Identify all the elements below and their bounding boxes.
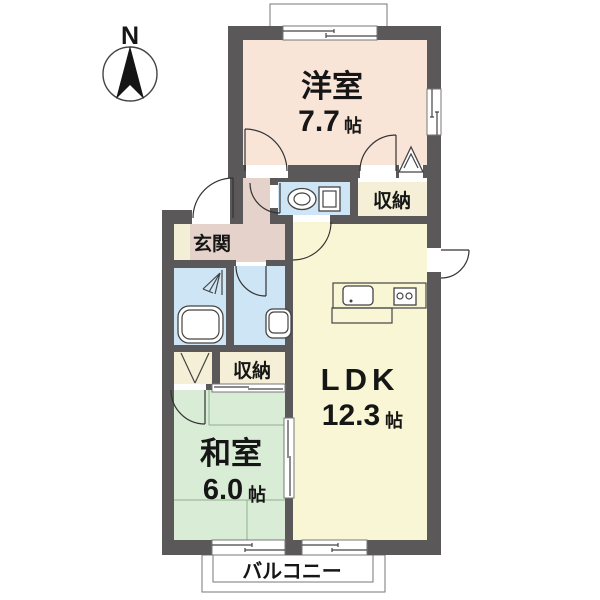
eaves-outline: [270, 4, 387, 28]
bathtub-icon: [178, 306, 223, 343]
ldk-unit: 帖: [385, 410, 403, 431]
western-room-unit: 帖: [344, 115, 362, 136]
floor-plan-canvas: N 洋室 7.7 帖 収納 玄関 LDK 12.3 帖 収納 和室 6.0 帖 …: [0, 0, 600, 600]
western-room-name: 洋室: [301, 69, 363, 104]
entrance-label: 玄関: [193, 232, 231, 255]
window-north: [283, 26, 377, 40]
entrance-step: [174, 224, 190, 262]
window-east-western-room: [427, 89, 441, 135]
entrance-door: [193, 178, 233, 218]
sliding-door-storage-lower: [212, 384, 285, 392]
north-compass: N: [103, 22, 157, 101]
window-balcony-ldk: [302, 540, 367, 555]
japanese-room-name: 和室: [200, 436, 262, 471]
sliding-door-japanese-ldk: [284, 418, 294, 498]
storage-upper-label: 収納: [373, 189, 411, 212]
ldk-area: 12.3: [322, 399, 380, 432]
japanese-room-unit: 帖: [248, 484, 266, 505]
storage-lower-label: 収納: [233, 359, 271, 382]
japanese-room-area: 6.0: [203, 474, 243, 506]
western-room-area: 7.7: [298, 105, 340, 138]
stove-icon: [394, 288, 416, 305]
balcony-label: バルコニー: [242, 560, 342, 583]
window-balcony-japanese: [212, 540, 285, 555]
north-label: N: [121, 22, 139, 50]
kitchen-sink-icon: [343, 286, 373, 305]
washbasin-icon: [266, 309, 291, 338]
floor-plan: N 洋室 7.7 帖 収納 玄関 LDK 12.3 帖 収納 和室 6.0 帖 …: [0, 0, 600, 600]
ldk-name: LDK: [321, 362, 400, 397]
